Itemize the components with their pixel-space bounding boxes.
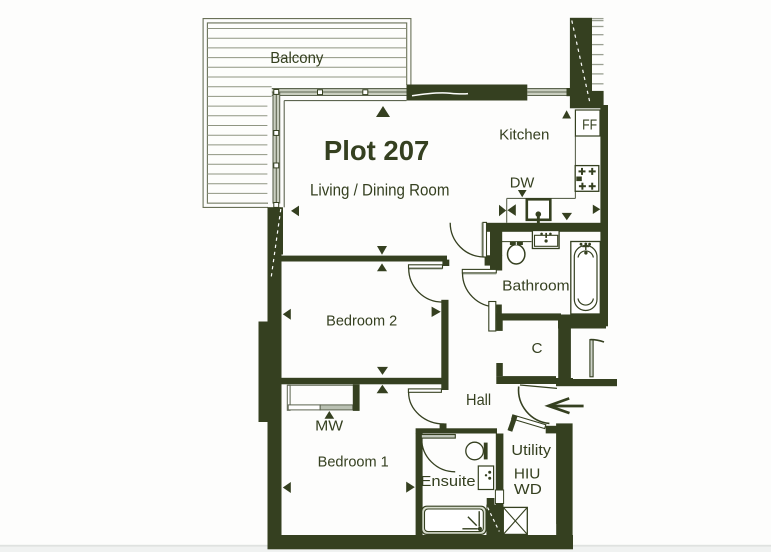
svg-text:Utility: Utility — [511, 442, 551, 459]
svg-text:Kitchen: Kitchen — [499, 126, 549, 143]
svg-text:Bedroom 2: Bedroom 2 — [326, 313, 397, 330]
svg-text:MW: MW — [315, 417, 344, 434]
svg-text:Hall: Hall — [466, 392, 491, 409]
svg-text:Living / Dining Room: Living / Dining Room — [310, 180, 450, 199]
svg-text:DW: DW — [510, 174, 535, 191]
svg-text:Plot 207: Plot 207 — [324, 135, 429, 166]
svg-text:FF: FF — [582, 116, 597, 133]
svg-text:Bathroom: Bathroom — [502, 278, 569, 295]
svg-text:HIU: HIU — [514, 465, 540, 482]
svg-text:WD: WD — [514, 481, 542, 498]
svg-text:Ensuite: Ensuite — [420, 473, 475, 490]
svg-text:C: C — [532, 340, 543, 357]
svg-text:Bedroom 1: Bedroom 1 — [318, 453, 389, 470]
svg-text:Balcony: Balcony — [270, 50, 323, 67]
